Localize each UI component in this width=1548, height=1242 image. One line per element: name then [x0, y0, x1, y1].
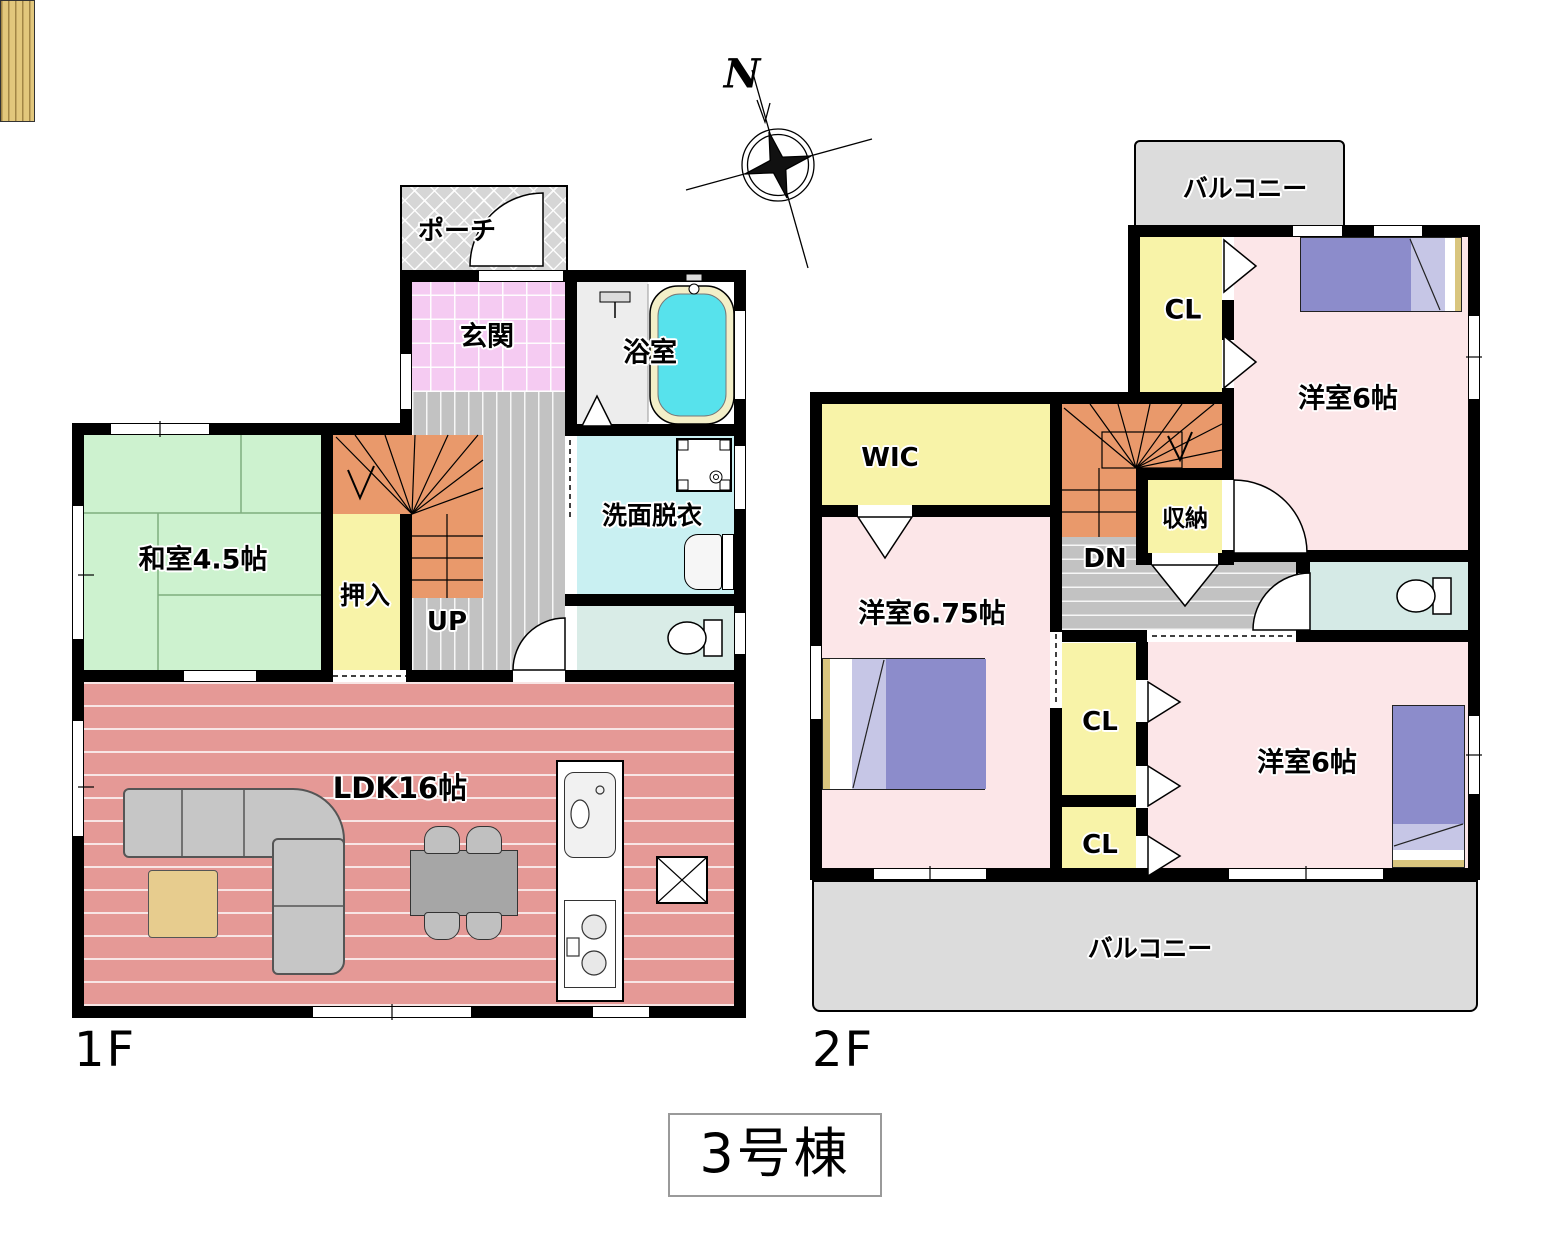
- label-stairs-down: DN: [1083, 544, 1126, 574]
- label-storage: 収納: [1162, 499, 1208, 533]
- label-oshiire: 押入: [340, 576, 390, 612]
- dining-table: [410, 850, 518, 916]
- window: [734, 445, 746, 510]
- entrance-door-opening: [478, 270, 564, 282]
- window: [734, 612, 746, 655]
- compass-north-label: N: [724, 51, 761, 98]
- wall: [565, 594, 746, 606]
- label-floor-1f: 1F: [74, 1022, 136, 1078]
- wall: [810, 505, 1062, 517]
- stairs-1f-lower: [412, 514, 483, 598]
- label-japanese-room: 和室4.5帖: [139, 538, 268, 577]
- label-closet-north: CL: [1164, 295, 1201, 326]
- label-balcony-south: バルコニー: [1088, 929, 1213, 965]
- room-toilet-2f: [1310, 562, 1468, 630]
- door-opening: [513, 670, 565, 682]
- closet-opening: [1222, 237, 1234, 300]
- wall: [1050, 392, 1062, 643]
- dining-chair: [424, 826, 460, 854]
- wall: [810, 392, 1234, 404]
- kitchen-stove: [564, 900, 616, 988]
- window: [400, 353, 412, 410]
- label-balcony-north: バルコニー: [1183, 169, 1308, 205]
- wall: [1222, 300, 1234, 340]
- window: [1228, 868, 1384, 880]
- vanity-sink: [684, 534, 722, 590]
- open-wall-dashed: [1147, 630, 1296, 642]
- sofa: [272, 838, 345, 975]
- building-title-box: 3号棟: [668, 1113, 882, 1197]
- kitchen-sink-unit: [564, 772, 616, 858]
- wall: [1222, 550, 1480, 562]
- closet-opening: [1222, 340, 1234, 388]
- wall: [565, 424, 746, 436]
- bed-west: [822, 658, 985, 790]
- stairs-2f-lower: [1062, 468, 1136, 537]
- window: [183, 670, 257, 682]
- window: [1292, 225, 1343, 237]
- room-toilet-1f: [577, 606, 734, 670]
- label-entrance: 玄関: [460, 315, 514, 354]
- room-wic: [822, 404, 1050, 505]
- window: [873, 868, 987, 880]
- wall: [321, 423, 333, 682]
- label-washroom: 洗面脱衣: [602, 496, 702, 532]
- dining-chair: [466, 826, 502, 854]
- wall: [810, 392, 822, 880]
- window: [1468, 315, 1480, 400]
- entrance-step-deck: [0, 0, 35, 122]
- closet-opening: [1136, 680, 1148, 722]
- washing-machine: [676, 438, 732, 492]
- label-stairs-up: UP: [427, 607, 467, 637]
- label-closet-south: CL: [1082, 830, 1118, 860]
- wall: [565, 270, 577, 436]
- label-bedroom-north: 洋室6帖: [1298, 377, 1398, 416]
- coffee-table: [148, 870, 218, 938]
- window: [72, 505, 84, 640]
- wall: [1136, 468, 1234, 480]
- label-bedroom-south: 洋室6帖: [1257, 741, 1357, 780]
- open-wall-dashed: [333, 670, 406, 682]
- wall: [1136, 468, 1148, 565]
- door-opening: [858, 505, 912, 517]
- window: [592, 1006, 650, 1018]
- stairs-2f-upper: [1062, 404, 1222, 468]
- door-opening: [1152, 553, 1218, 565]
- window: [312, 1006, 472, 1018]
- window: [110, 423, 210, 435]
- window: [1373, 225, 1423, 237]
- wall: [1222, 388, 1234, 480]
- building-title: 3号棟: [699, 1122, 850, 1185]
- bed-north: [1300, 237, 1462, 312]
- label-bedroom-west: 洋室6.75帖: [858, 592, 1006, 631]
- refrigerator-space: [656, 856, 708, 904]
- label-closet-mid: CL: [1082, 707, 1118, 737]
- window: [810, 645, 822, 720]
- label-floor-2f: 2F: [812, 1022, 874, 1078]
- vanity-counter: [722, 534, 734, 590]
- compass-rose-icon: [686, 70, 872, 268]
- floor-plan-canvas: N ポーチ 玄関 浴室 和室4.5帖 押入 UP 洗面脱衣 LDK16帖 1F …: [0, 0, 1548, 1242]
- label-porch: ポーチ: [418, 211, 496, 248]
- closet-opening: [1136, 766, 1148, 808]
- closet-opening: [1136, 836, 1148, 868]
- label-ldk: LDK16帖: [333, 765, 467, 807]
- label-wic: WIC: [861, 443, 918, 473]
- window: [734, 310, 746, 400]
- door-opening: [1222, 480, 1234, 550]
- wall: [400, 514, 412, 682]
- wall: [1128, 225, 1140, 404]
- dining-chair: [466, 912, 502, 940]
- window: [1468, 715, 1480, 795]
- window: [72, 720, 84, 837]
- wall: [1050, 795, 1148, 807]
- bed-south: [1392, 705, 1465, 868]
- door-opening: [1298, 573, 1308, 630]
- stairs-1f-upper: [333, 435, 483, 514]
- open-wall-dashed: [1050, 632, 1062, 708]
- dining-chair: [424, 912, 460, 940]
- label-bathroom: 浴室: [623, 331, 677, 370]
- wall: [1296, 630, 1480, 642]
